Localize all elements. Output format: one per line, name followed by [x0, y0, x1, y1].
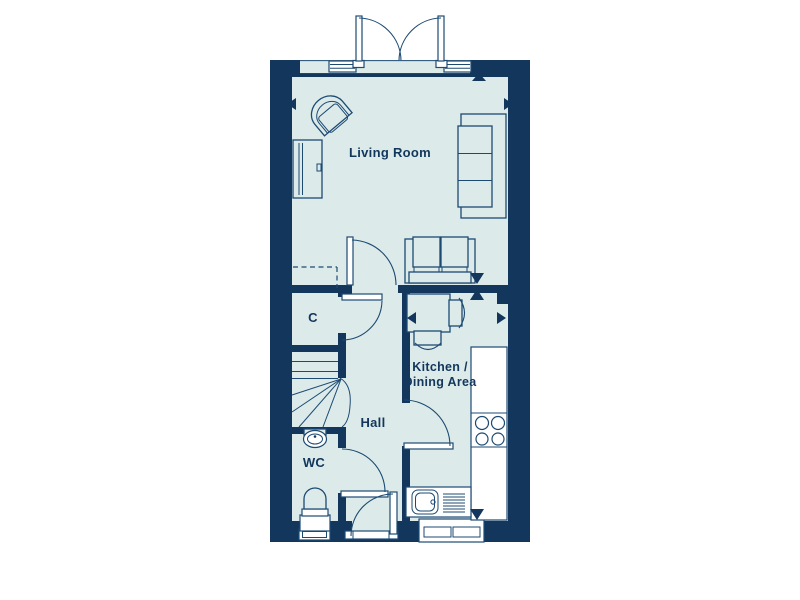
wall-kitchen-jut: [497, 293, 508, 304]
drainer-lines: [443, 494, 465, 512]
dining-table: [407, 294, 450, 332]
hall-door-leaf: [347, 237, 353, 285]
three-seat-sofa: [458, 114, 506, 218]
hob-burner: [492, 433, 504, 445]
hob-burner: [492, 417, 505, 430]
loveseat-base: [409, 272, 471, 283]
french-door-left-swing: [359, 18, 401, 60]
sofa-cushions: [458, 126, 492, 207]
wc-label: WC: [303, 455, 326, 470]
toilet-seat-base: [302, 509, 328, 516]
top-wall-left-window: [329, 61, 356, 72]
loveseat-cushion-right: [441, 237, 468, 267]
kitchen-door-leaf: [404, 443, 453, 449]
wall-cupboard-bottom: [292, 345, 340, 352]
basin-bowl: [304, 431, 327, 448]
cupboard-label: C: [308, 310, 318, 325]
french-door-right-swing: [399, 18, 441, 60]
toilet: [300, 488, 330, 531]
loveseat-cushion-left: [413, 237, 440, 267]
top-wall-right-window: [444, 61, 471, 72]
hob-burner: [476, 433, 488, 445]
basin-tap: [314, 435, 317, 438]
kitchen-label-line1: Kitchen /: [412, 360, 468, 374]
french-door-left-leaf: [356, 16, 362, 61]
hob-burner: [476, 417, 489, 430]
wall-living-kitchen: [398, 285, 508, 293]
loveseat: [405, 237, 475, 283]
hall-label: Hall: [360, 415, 385, 430]
french-door-right-leaf: [438, 16, 444, 61]
toilet-bowl: [304, 488, 326, 509]
wall-wc-right-upper: [338, 434, 346, 448]
floor-plan: Living Room C Kitchen / Dining Area Hall…: [0, 0, 800, 600]
floor-plan-page: Living Room C Kitchen / Dining Area Hall…: [0, 0, 800, 600]
front-door-leaf: [390, 492, 397, 534]
top-glazed-wall: [300, 16, 471, 74]
worktop-with-hob: [471, 347, 507, 520]
kitchen-label-line2: Dining Area: [404, 375, 478, 389]
tv-unit: [293, 140, 322, 198]
dining-chair-right: [449, 298, 465, 328]
toilet-cistern: [300, 515, 330, 531]
sink-with-drainer: [406, 487, 471, 517]
living-room-label: Living Room: [349, 145, 431, 160]
cupboard-door-leaf: [342, 294, 382, 300]
basin: [304, 429, 327, 448]
french-doors: [353, 16, 447, 68]
kitchen-window: [419, 519, 484, 542]
